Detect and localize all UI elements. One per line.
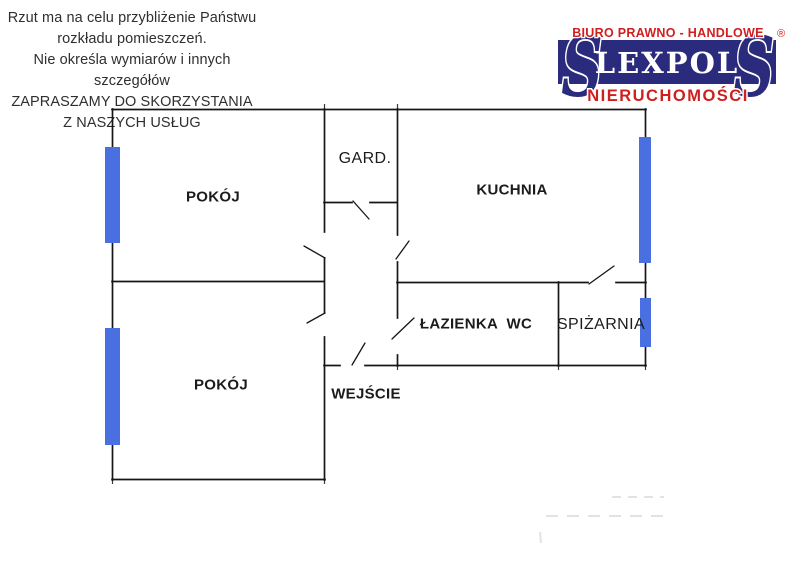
door-swing xyxy=(307,313,325,323)
window-marker xyxy=(639,137,651,263)
room-label-wejscie: WEJŚCIE xyxy=(331,386,401,403)
room-label-kuchnia: KUCHNIA xyxy=(476,182,547,199)
door-swing xyxy=(396,241,409,259)
room-label-pokoj-lower: POKÓJ xyxy=(194,377,248,394)
scan-artifacts xyxy=(540,497,664,543)
room-label-lazienka-wc: ŁAZIENKA WC xyxy=(420,316,532,333)
floor-plan-page: Rzut ma na celu przybliżenie Państwu roz… xyxy=(0,0,800,566)
artifact xyxy=(540,532,541,543)
floor-plan-svg xyxy=(0,0,800,566)
window-marker xyxy=(105,328,120,445)
door-swing xyxy=(589,266,614,284)
room-label-gard: GARD. xyxy=(339,150,392,168)
door-swing xyxy=(352,343,365,365)
window-marker xyxy=(105,147,120,243)
room-label-spizarnia: SPIŻARNIA xyxy=(557,316,645,334)
door-swing xyxy=(353,201,369,219)
door-swing xyxy=(392,318,414,339)
door-swing xyxy=(304,246,325,258)
room-label-pokoj-upper: POKÓJ xyxy=(186,189,240,206)
